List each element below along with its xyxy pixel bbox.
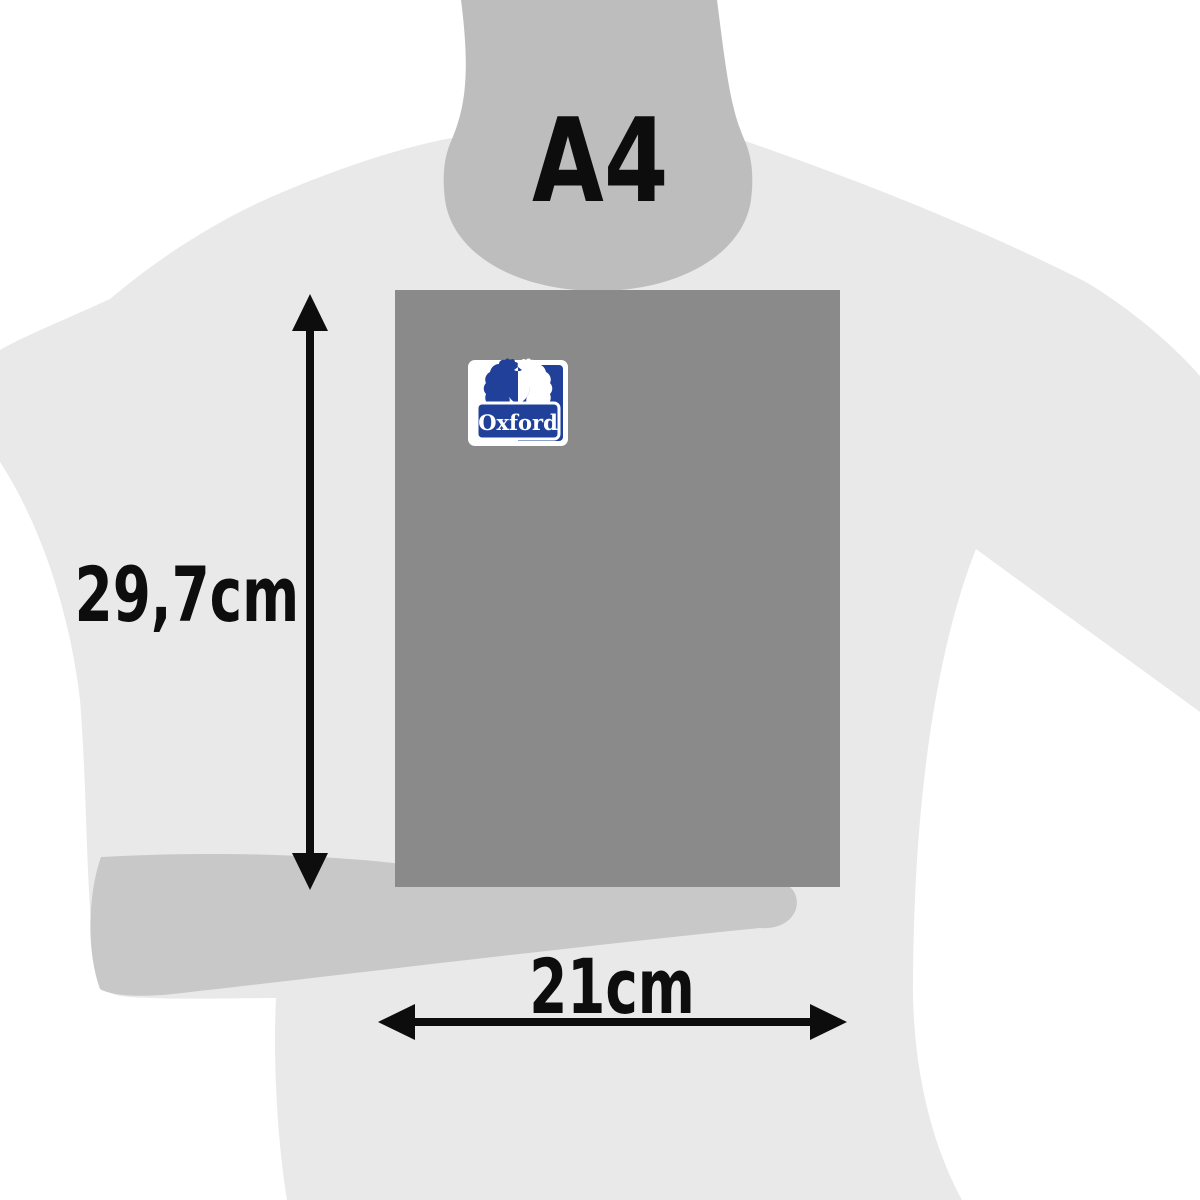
product-size-illustration: Oxford A4 29,7cm 21cm [0, 0, 1200, 1200]
logo-brand-text: Oxford [478, 410, 558, 435]
width-dimension-label: 21cm [312, 949, 912, 1025]
height-dimension-text: 29,7cm [75, 557, 299, 633]
oxford-logo: Oxford [468, 359, 568, 447]
format-label-text: A4 [532, 104, 668, 220]
width-dimension-text: 21cm [529, 949, 695, 1025]
format-label: A4 [300, 104, 900, 220]
height-dimension-label: 29,7cm [0, 557, 487, 633]
